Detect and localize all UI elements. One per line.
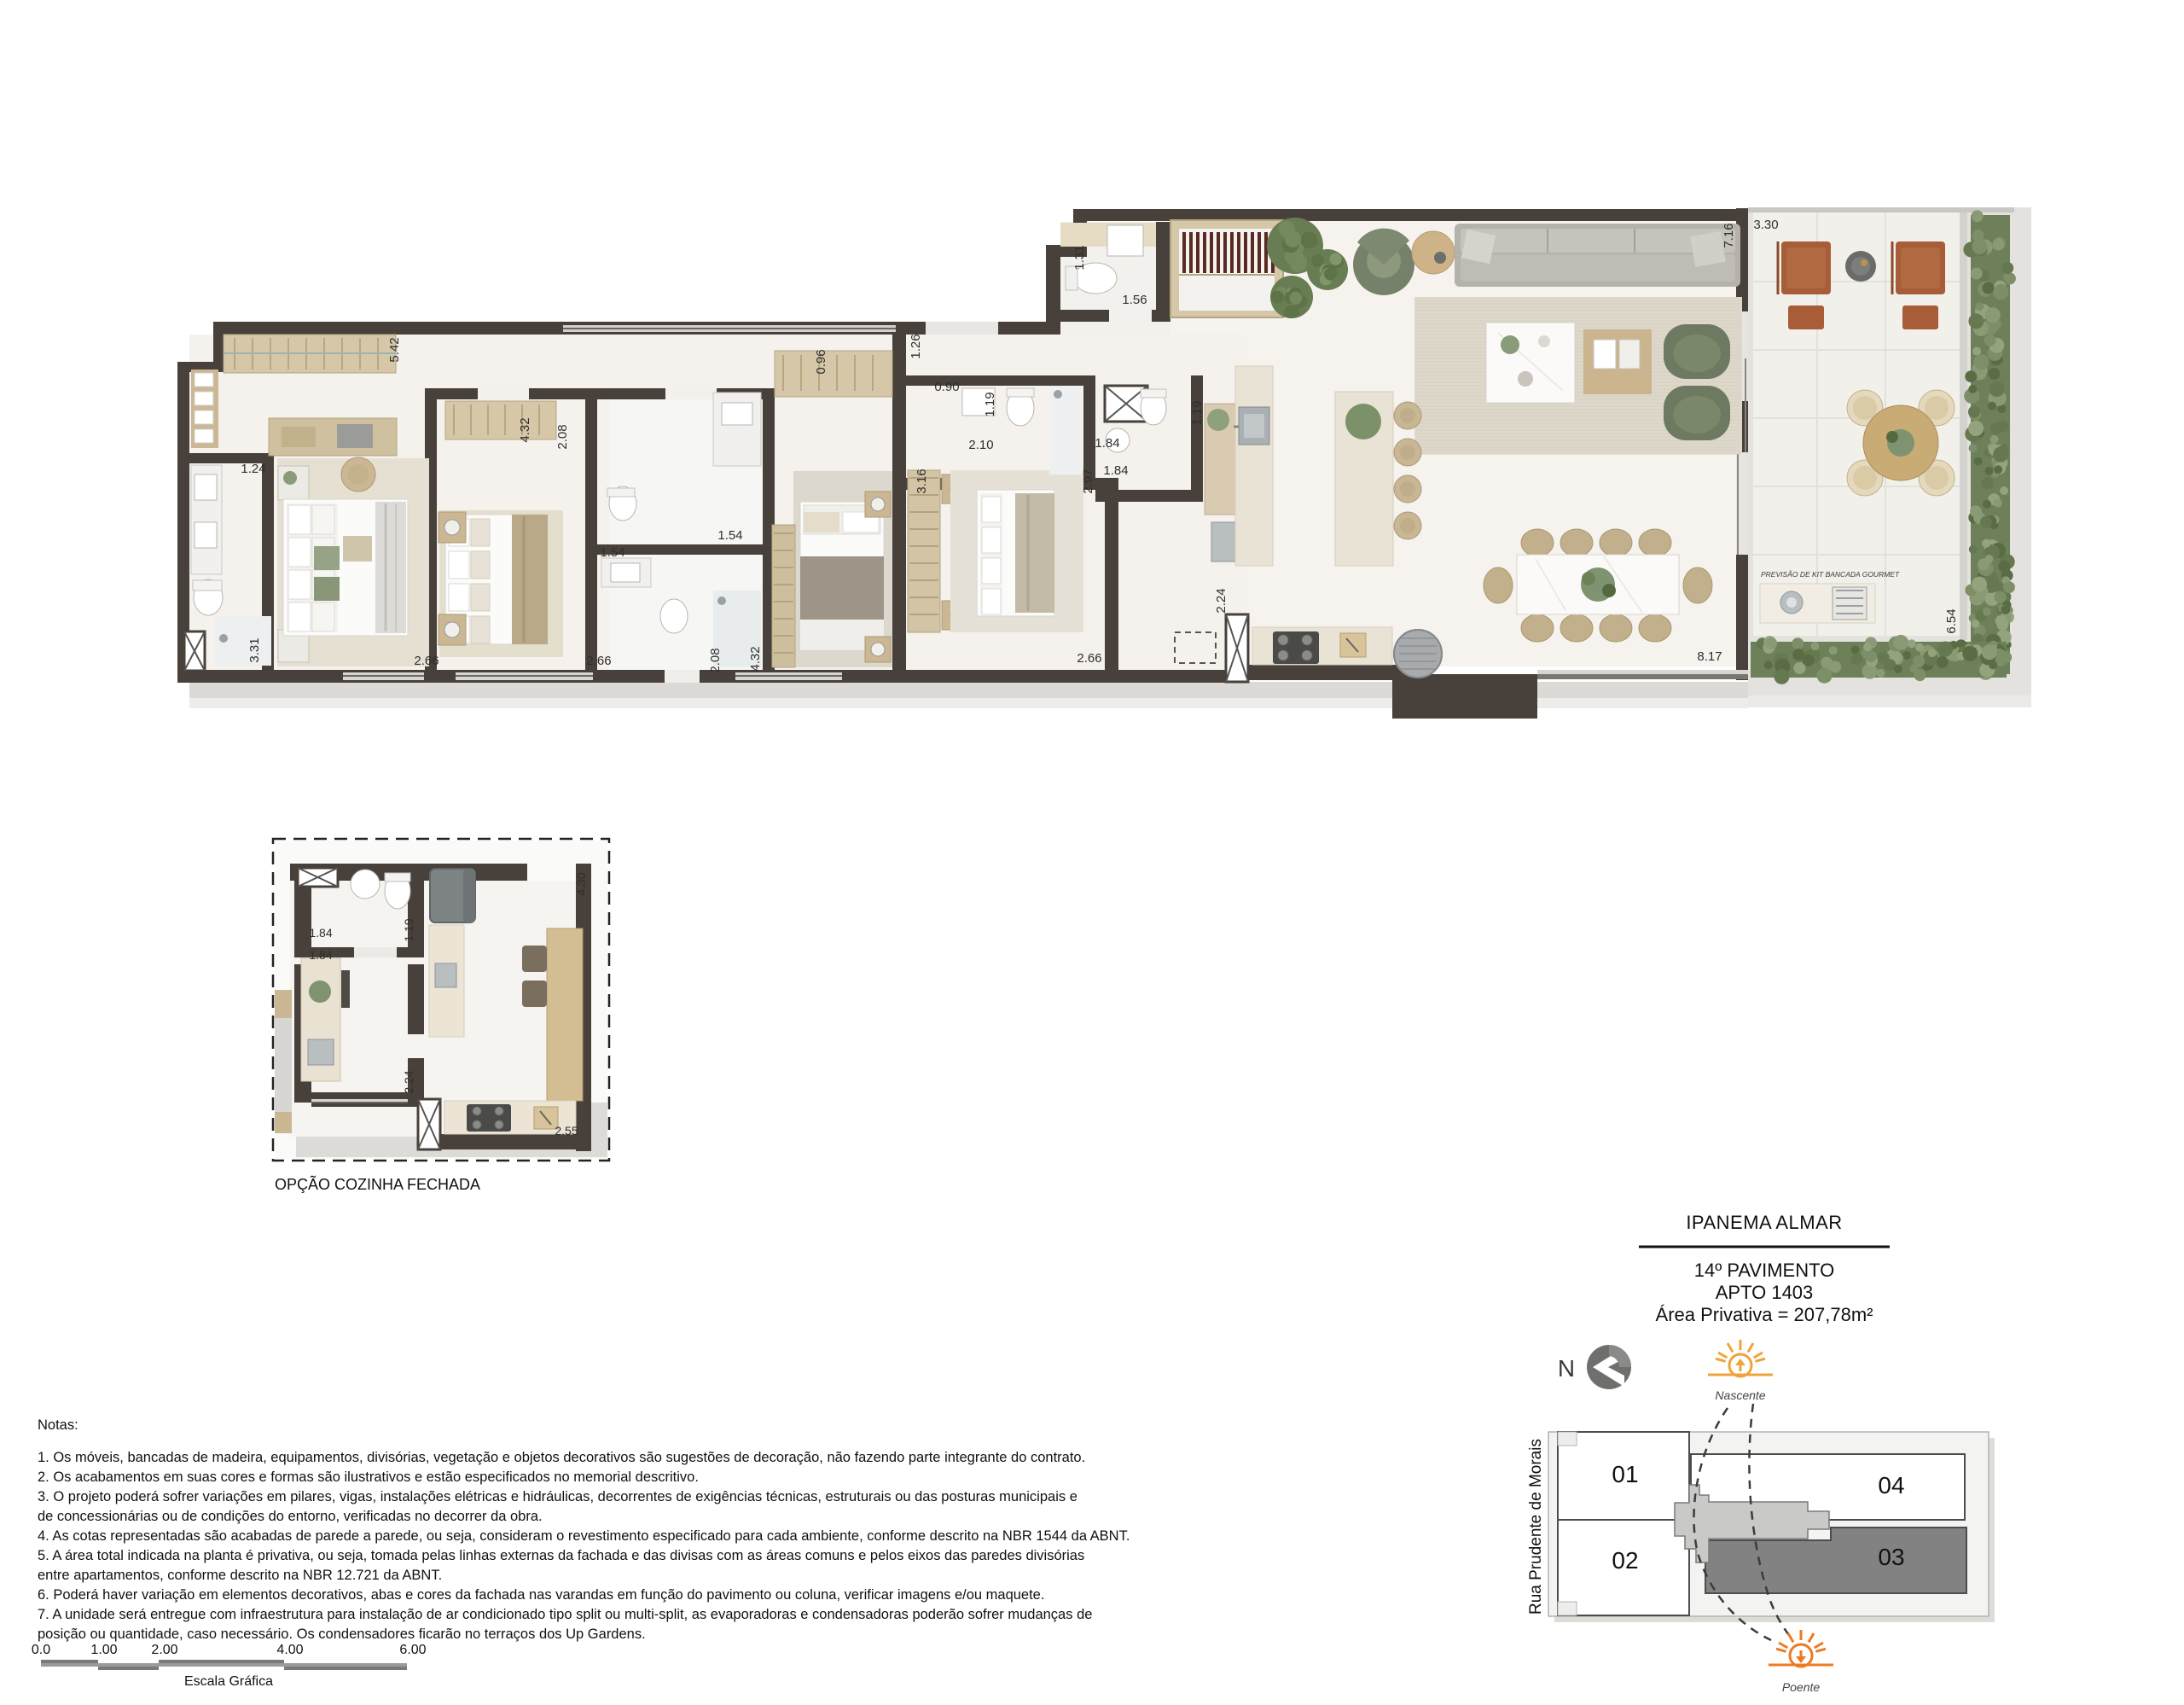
svg-text:1. Os móveis, bancadas de made: 1. Os móveis, bancadas de madeira, equip… xyxy=(38,1450,1085,1465)
svg-text:0.0: 0.0 xyxy=(32,1643,50,1657)
svg-text:3.31: 3.31 xyxy=(247,637,262,662)
svg-text:7.16: 7.16 xyxy=(1722,223,1736,247)
svg-text:entre apartamentos, conforme d: entre apartamentos, conforme descrito na… xyxy=(38,1568,442,1583)
svg-text:4.32: 4.32 xyxy=(748,646,763,671)
svg-text:0.96: 0.96 xyxy=(814,349,828,374)
svg-text:posição ou quantidade, caso ne: posição ou quantidade, caso necessário. … xyxy=(38,1626,646,1642)
svg-text:1.24: 1.24 xyxy=(241,462,265,476)
svg-text:8.17: 8.17 xyxy=(1697,649,1722,664)
svg-text:PREVISÃO DE KIT BANCADA GOURME: PREVISÃO DE KIT BANCADA GOURMET xyxy=(1761,570,1900,579)
svg-text:1.19: 1.19 xyxy=(1190,400,1205,425)
svg-text:Nascente: Nascente xyxy=(1715,1388,1765,1402)
svg-text:1.84: 1.84 xyxy=(309,926,332,940)
svg-text:OPÇÃO COZINHA FECHADA: OPÇÃO COZINHA FECHADA xyxy=(275,1175,480,1193)
svg-text:1.54: 1.54 xyxy=(600,545,624,560)
svg-text:2.24: 2.24 xyxy=(1214,588,1228,613)
svg-text:1.19: 1.19 xyxy=(983,392,997,416)
svg-text:Área Privativa = 207,78m²: Área Privativa = 207,78m² xyxy=(1656,1304,1873,1325)
svg-text:2.08: 2.08 xyxy=(555,424,570,449)
svg-text:04: 04 xyxy=(1878,1472,1904,1498)
svg-text:1.31: 1.31 xyxy=(1072,245,1087,270)
svg-text:1.26: 1.26 xyxy=(909,334,923,358)
svg-text:02: 02 xyxy=(1612,1547,1638,1574)
svg-text:1.84: 1.84 xyxy=(1103,463,1128,478)
svg-text:6.00: 6.00 xyxy=(399,1643,426,1657)
svg-text:5. A área total indicada na pl: 5. A área total indicada na planta é pri… xyxy=(38,1548,1084,1563)
svg-text:3.16: 3.16 xyxy=(915,468,929,493)
svg-text:14º PAVIMENTO: 14º PAVIMENTO xyxy=(1694,1260,1835,1281)
svg-text:03: 03 xyxy=(1878,1544,1904,1570)
svg-text:3.30: 3.30 xyxy=(1753,218,1778,232)
svg-text:2.10: 2.10 xyxy=(968,438,993,452)
svg-text:IPANEMA ALMAR: IPANEMA ALMAR xyxy=(1686,1212,1842,1233)
svg-text:Rua Prudente de Morais: Rua Prudente de Morais xyxy=(1527,1439,1545,1615)
svg-text:Poente: Poente xyxy=(1782,1680,1821,1694)
svg-text:0.90: 0.90 xyxy=(934,380,959,394)
svg-text:APTO 1403: APTO 1403 xyxy=(1716,1282,1814,1303)
svg-text:2.66: 2.66 xyxy=(1077,651,1101,666)
svg-text:6.54: 6.54 xyxy=(1944,608,1959,633)
svg-text:4.32: 4.32 xyxy=(518,417,532,442)
svg-text:3. O projeto poderá sofrer var: 3. O projeto poderá sofrer variações em … xyxy=(38,1489,1077,1504)
svg-text:de concessionárias ou de condi: de concessionárias ou de condições do en… xyxy=(38,1509,543,1524)
svg-text:4. As cotas representadas são: 4. As cotas representadas são acabadas d… xyxy=(38,1528,1130,1544)
svg-text:2. Os acabamentos em suas core: 2. Os acabamentos em suas cores e formas… xyxy=(38,1469,699,1485)
svg-text:1.84: 1.84 xyxy=(1095,436,1119,451)
svg-text:1.19: 1.19 xyxy=(402,918,415,941)
svg-text:Notas:: Notas: xyxy=(38,1417,78,1433)
svg-text:2.66: 2.66 xyxy=(586,654,611,668)
svg-text:01: 01 xyxy=(1612,1461,1638,1487)
svg-text:1.54: 1.54 xyxy=(717,528,742,543)
svg-text:Escala Gráfica: Escala Gráfica xyxy=(184,1674,273,1689)
svg-text:1.00: 1.00 xyxy=(90,1643,117,1657)
svg-text:4.00: 4.00 xyxy=(276,1643,303,1657)
svg-text:2.00: 2.00 xyxy=(151,1643,177,1657)
svg-text:5.42: 5.42 xyxy=(387,337,402,362)
svg-text:2.24: 2.24 xyxy=(402,1070,415,1093)
svg-text:4.30: 4.30 xyxy=(574,872,588,895)
svg-text:1.84: 1.84 xyxy=(309,948,332,962)
svg-text:7. A unidade será entregue com: 7. A unidade será entregue com infraestr… xyxy=(38,1607,1092,1622)
svg-text:N: N xyxy=(1558,1355,1575,1382)
svg-text:2.66: 2.66 xyxy=(414,654,439,668)
svg-text:2.08: 2.08 xyxy=(708,648,723,672)
svg-text:1.56: 1.56 xyxy=(1122,293,1147,307)
svg-text:2.97: 2.97 xyxy=(1081,468,1095,493)
svg-text:6. Poderá haver variação em el: 6. Poderá haver variação em elementos de… xyxy=(38,1587,1044,1603)
svg-text:2.55: 2.55 xyxy=(555,1124,578,1138)
